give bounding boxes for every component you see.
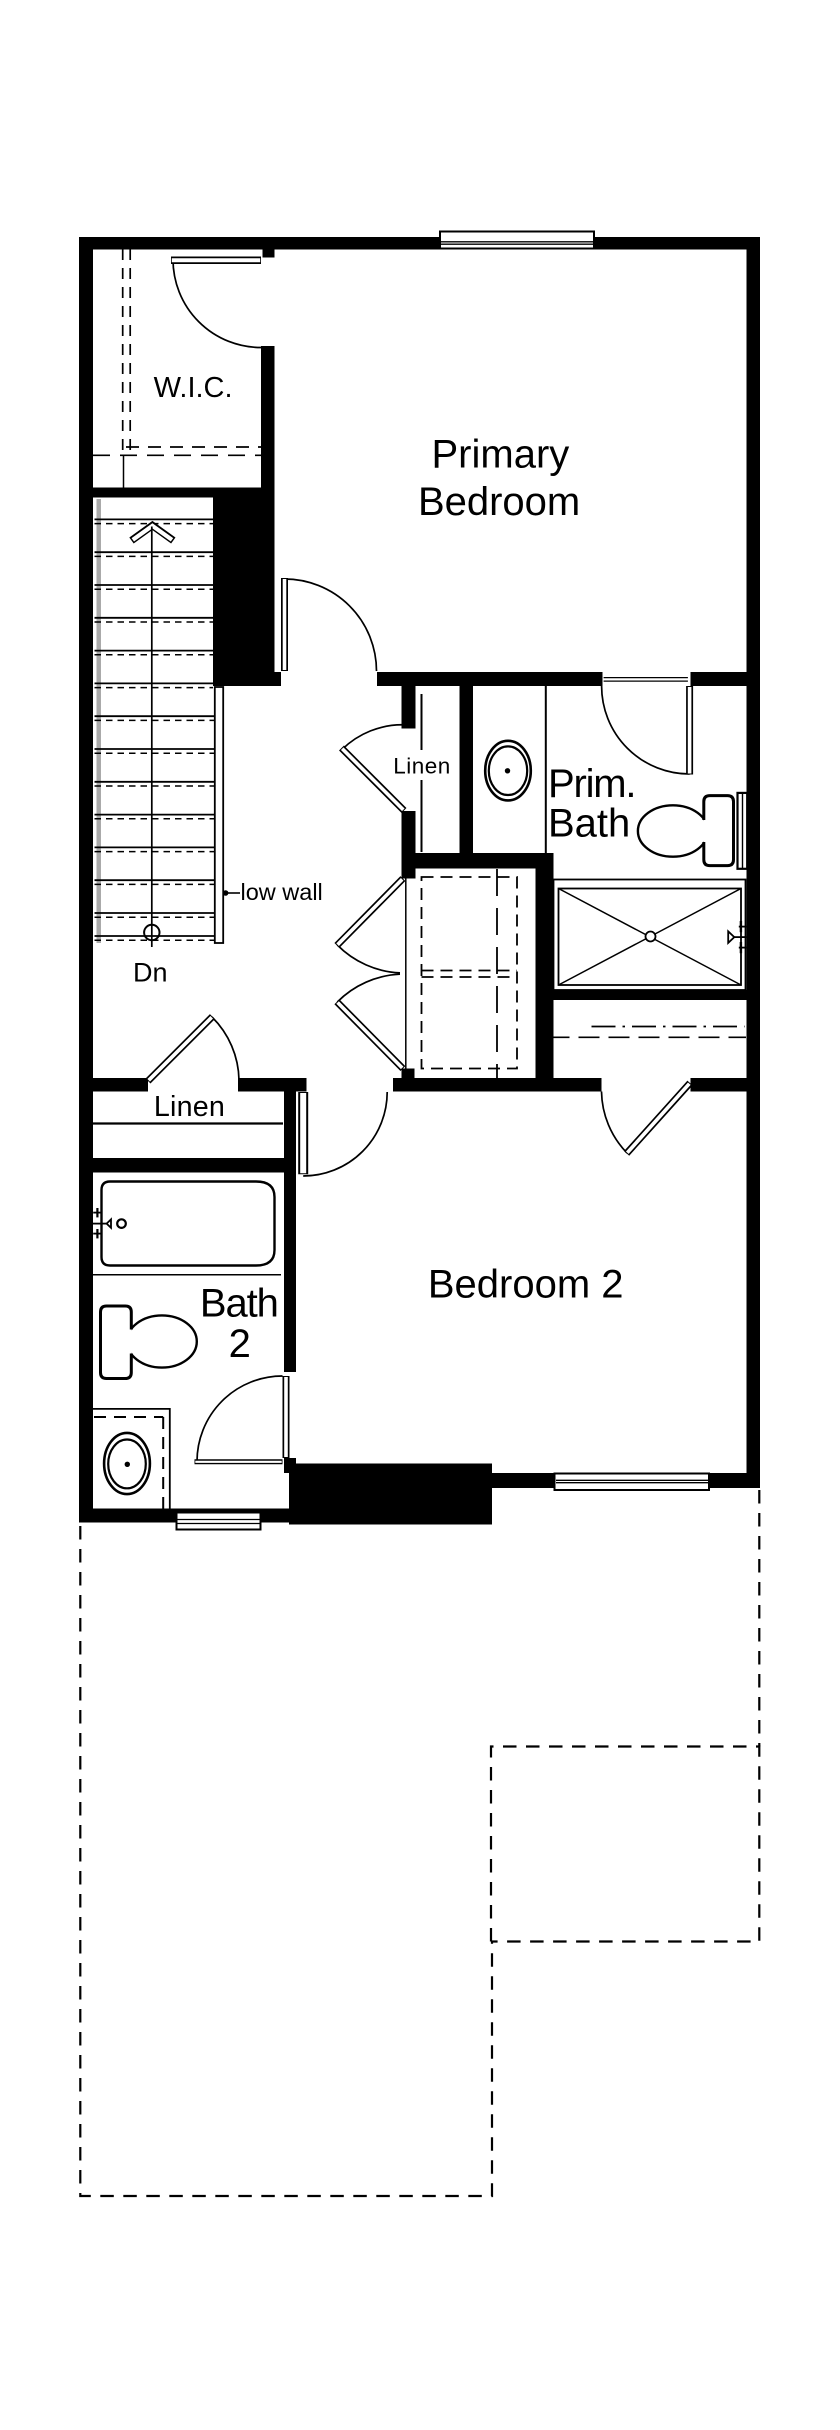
svg-text:Bedroom: Bedroom [418,480,580,524]
svg-text:Linen: Linen [393,753,450,778]
svg-text:Bath: Bath [200,1281,279,1325]
svg-text:Primary: Primary [432,433,570,477]
svg-text:2: 2 [229,1322,251,1366]
svg-text:low wall: low wall [241,879,323,905]
svg-text:Dn: Dn [133,958,168,988]
svg-text:Bath: Bath [548,802,630,846]
svg-text:Linen: Linen [154,1091,225,1123]
svg-text:W.I.C.: W.I.C. [154,372,233,404]
svg-text:Prim.: Prim. [548,762,637,806]
svg-text:Bedroom 2: Bedroom 2 [428,1263,624,1307]
